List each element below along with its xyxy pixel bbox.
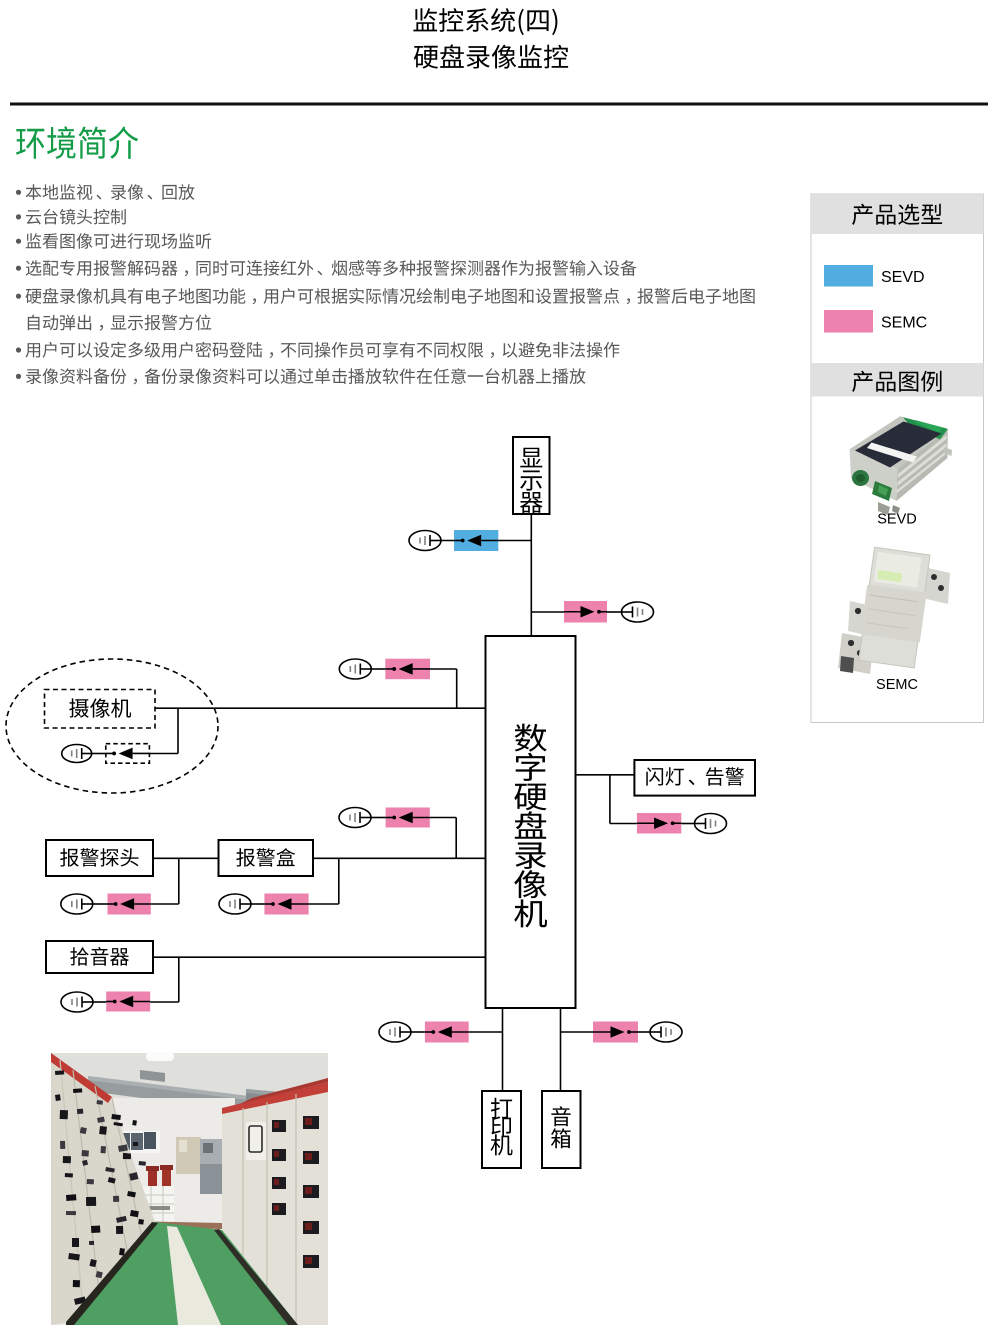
svg-text:SEMC: SEMC <box>881 315 927 332</box>
svg-text:SEMC: SEMC <box>876 677 918 693</box>
svg-text:SEVD: SEVD <box>881 269 925 286</box>
svg-text:SEVD: SEVD <box>877 512 917 528</box>
